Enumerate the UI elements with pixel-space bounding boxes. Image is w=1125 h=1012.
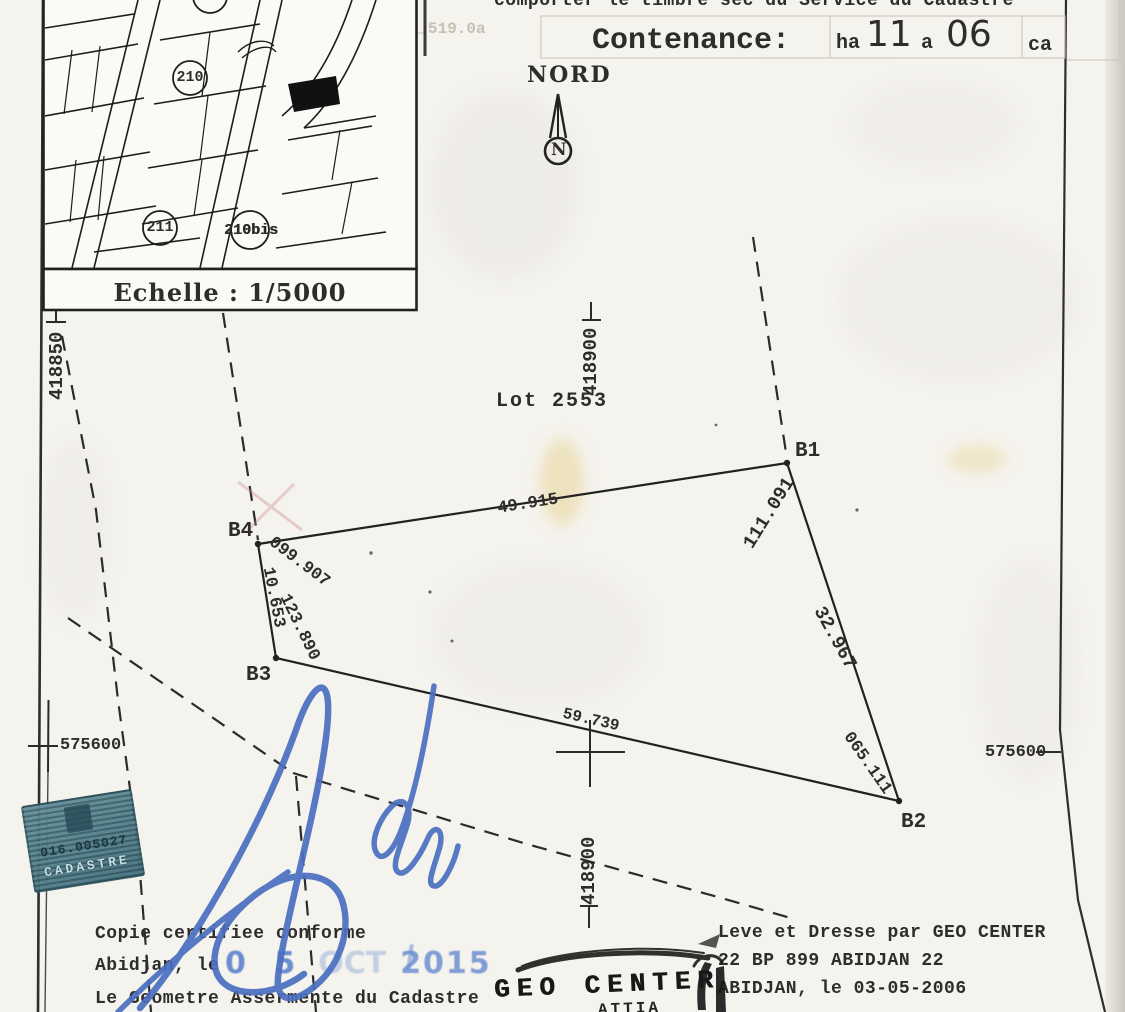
vertex-label-b3: B3 — [246, 664, 271, 687]
contenance-label: Contenance: — [592, 24, 790, 58]
parcel-210bis-label: 210bis — [218, 222, 284, 239]
top-margin-note: comporter le timbre sec du Service du Ca… — [494, 0, 1014, 11]
grid-label-418900-bottom: 418900 — [578, 833, 600, 905]
date-stamp-day: 0 5 — [225, 946, 304, 981]
contenance-ha-value: 11 — [866, 14, 912, 55]
vertex-label-b1: B1 — [795, 440, 820, 463]
grid-label-575600-right: 575600 — [985, 743, 1046, 762]
parcel-211-label: 211 — [146, 219, 174, 236]
certification-line2: Abidjan, le — [95, 956, 219, 976]
certification-line1: Copie certifiee conforme — [95, 924, 366, 944]
stamp-emblem — [64, 804, 94, 834]
location-inset-map — [42, 0, 418, 312]
contenance-ca-label: ca — [1028, 34, 1052, 57]
adjoining-boundary-dashed-lines — [62, 237, 794, 1012]
north-letter: N — [551, 140, 567, 160]
surveyor-line2: 22 BP 899 ABIDJAN 22 — [718, 951, 944, 971]
date-stamp-year: 2015 — [400, 946, 492, 981]
grid-label-418850: 418850 — [46, 324, 68, 400]
certification-line3: Le Geometre Assermente du Cadastre — [95, 989, 479, 1009]
geo-center-stamp-subtitle: ATTIA — [598, 999, 662, 1012]
vertex-label-b2: B2 — [901, 811, 926, 834]
parcel-boundary — [258, 463, 899, 801]
grid-label-418900-top: 418900 — [580, 322, 602, 396]
surveyor-line3: ABIDJAN, le 03-05-2006 — [718, 979, 967, 999]
surveyor-line1: Leve et Dresse par GEO CENTER — [718, 923, 1046, 943]
date-stamp: 0 5 OCT 2015 — [225, 946, 492, 981]
faint-bleed-mark: 519.0a — [428, 20, 486, 38]
north-label: NORD — [527, 62, 612, 88]
date-stamp-month: OCT — [318, 946, 386, 981]
grid-label-575600-left: 575600 — [60, 736, 121, 755]
contenance-a-label: a — [921, 32, 933, 55]
ink-specks — [369, 424, 858, 643]
cadastre-revenue-stamp: 016.005027 CADASTRE — [21, 789, 145, 893]
contenance-a-value: 06 — [946, 14, 992, 55]
parcel-210-label: 210 — [176, 69, 204, 86]
vertex-label-b4: B4 — [228, 520, 253, 543]
scale-caption: Echelle : 1/5000 — [42, 278, 418, 307]
right-border-rule — [1060, 0, 1105, 1012]
scanned-cadastral-plan: 210 211 210bis Echelle : 1/5000 comporte… — [0, 0, 1125, 1012]
contenance-ha-label: ha — [836, 32, 860, 55]
